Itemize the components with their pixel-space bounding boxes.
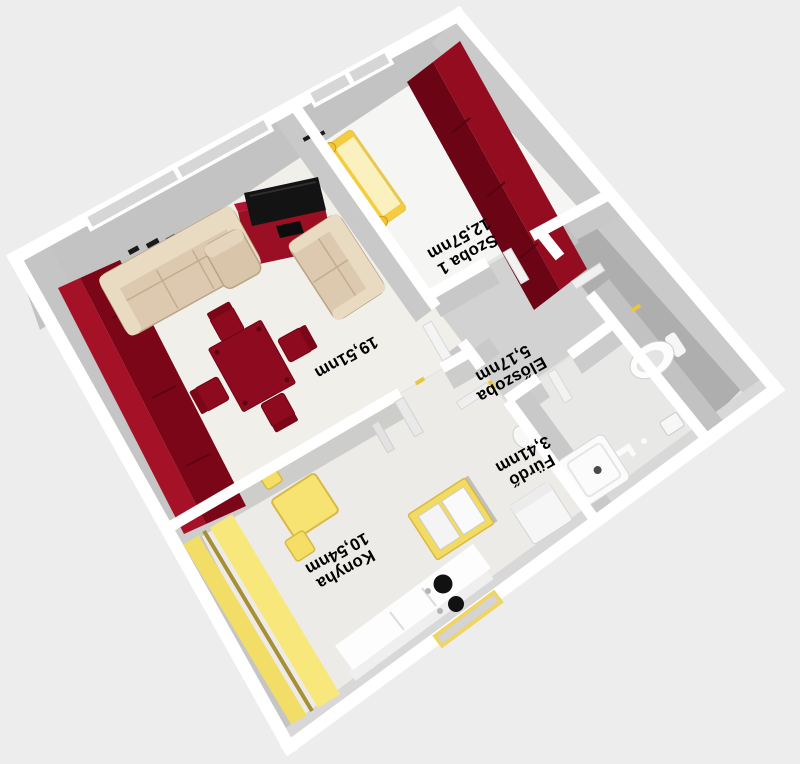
stove-burner	[448, 596, 464, 612]
stove-knob	[437, 608, 443, 614]
floorplan-canvas	[0, 0, 800, 764]
stove-burner	[434, 575, 453, 594]
floorplan-3d-view[interactable]: 19,51nm Szoba 1 12,57nm Előszoba 5,17nm …	[0, 0, 800, 764]
stove-knob	[425, 588, 431, 594]
